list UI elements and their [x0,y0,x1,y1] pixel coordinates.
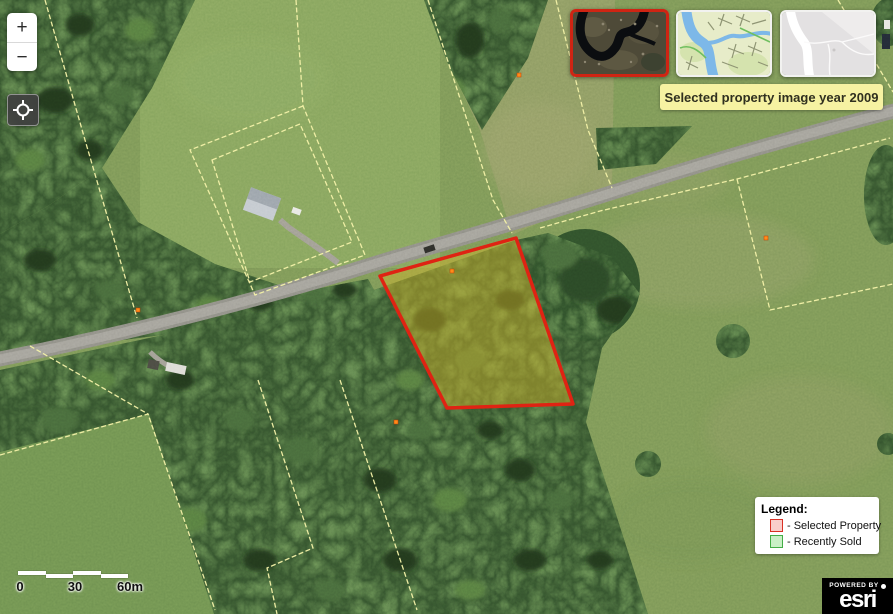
legend-item-selected-property: - Selected Property [770,519,879,532]
scale-tick-label: 0 [16,579,23,594]
zoom-out-button[interactable]: − [7,43,37,71]
legend-title: Legend: [761,502,879,516]
esri-globe-icon [881,584,886,589]
recently-sold-swatch [770,535,783,548]
scale-tick-label: 60m [117,579,143,594]
esri-attribution: POWERED BY esri [822,578,893,614]
zoom-in-button[interactable]: + [7,13,37,43]
aerial-thumbnail-image [573,12,666,74]
basemap-thumbnail-streets[interactable] [676,10,772,77]
selected-property-swatch [770,519,783,532]
locate-button[interactable] [7,94,39,126]
basemap-thumbnail-light-gray[interactable] [780,10,876,77]
legend-item-label: - Recently Sold [787,536,862,548]
map-viewport: + − [0,0,893,614]
scale-tick-label: 30 [68,579,82,594]
crosshair-icon [11,98,35,122]
scale-segment [46,574,74,578]
legend-item-label: - Selected Property [787,520,881,532]
scale-segment [18,571,46,575]
scale-segment [73,571,101,575]
scale-bar: 0 30 60m [18,571,148,597]
basemap-thumbnail-aerial-selected[interactable] [570,9,669,77]
street-map-thumbnail-image [678,12,770,75]
zoom-control: + − [7,13,37,71]
scale-segment [101,574,129,578]
selected-image-year-tooltip: Selected property image year 2009 [660,84,883,110]
light-gray-thumbnail-image [782,12,874,75]
legend-panel: Legend: - Selected Property - Recently S… [755,497,879,554]
esri-logo: esri [839,590,876,610]
legend-item-recently-sold: - Recently Sold [770,535,879,548]
